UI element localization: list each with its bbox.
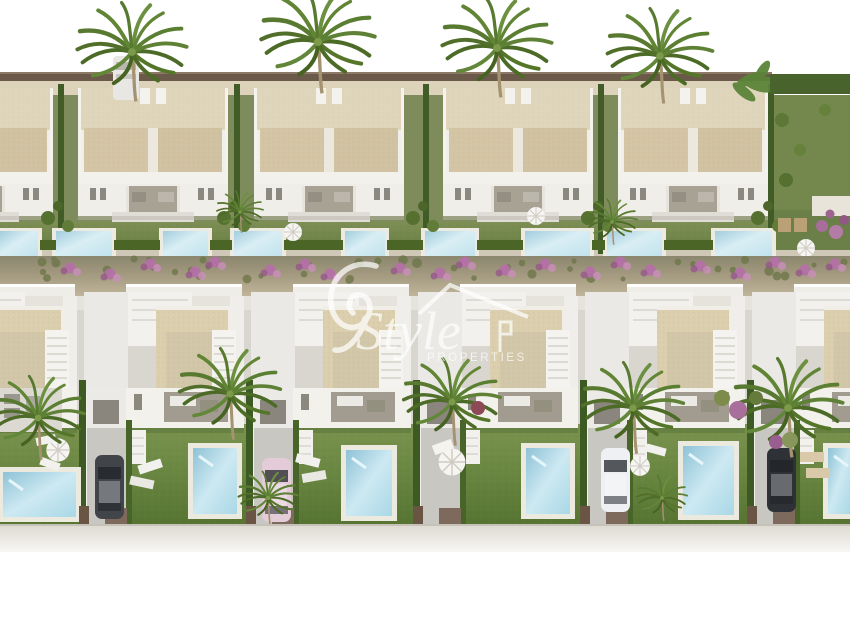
svg-text:PROPERTIES: PROPERTIES [427, 352, 527, 364]
